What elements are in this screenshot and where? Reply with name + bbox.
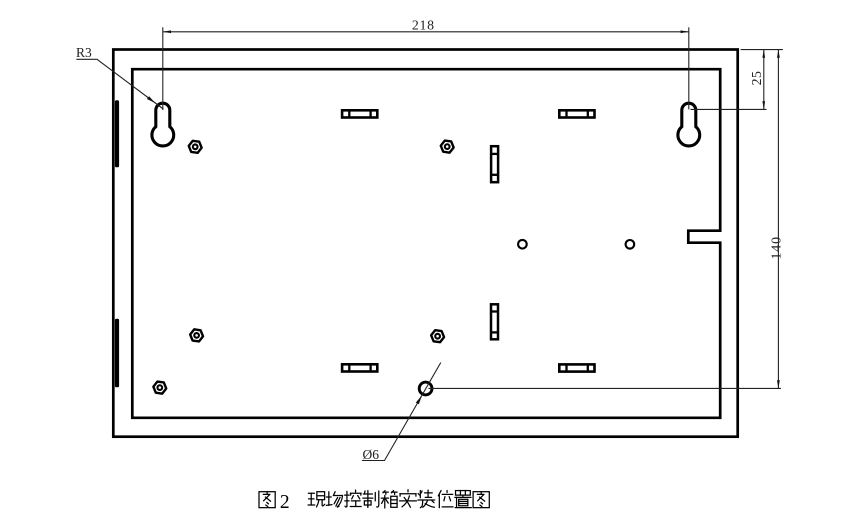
- svg-text:Ø6: Ø6: [363, 447, 380, 462]
- svg-text:218: 218: [412, 18, 435, 33]
- svg-text:2: 2: [280, 492, 290, 513]
- svg-text:R3: R3: [76, 45, 92, 60]
- svg-text:25: 25: [749, 71, 764, 86]
- svg-text:140: 140: [769, 236, 784, 259]
